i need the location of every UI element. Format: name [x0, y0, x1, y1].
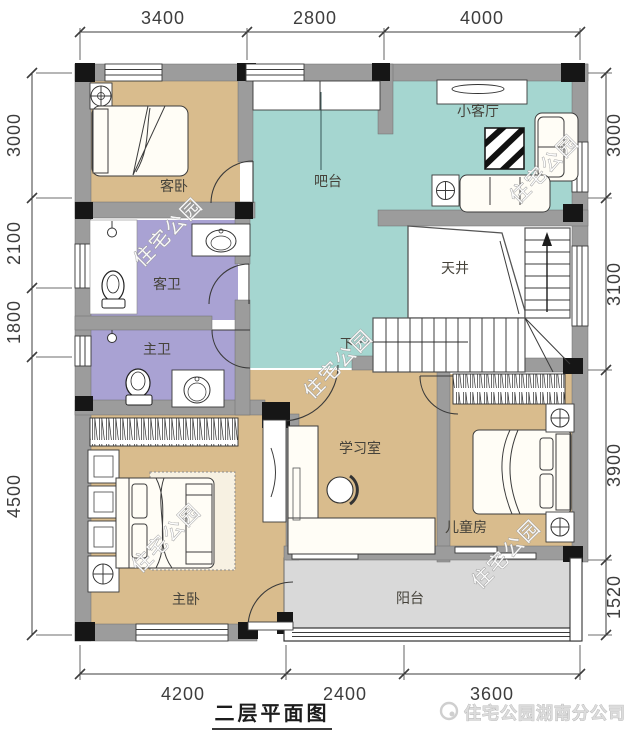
- label-bar: 吧台: [314, 173, 342, 189]
- stair-lower-flight: [373, 318, 525, 372]
- label-guest-bath: 客卫: [153, 276, 181, 292]
- nightstand-lamp-icon: [88, 556, 119, 592]
- bar-counter: [253, 81, 380, 110]
- side-table-icon: [432, 175, 459, 206]
- window-left-master-bath: [75, 336, 91, 366]
- kids-nightstand-bottom: [546, 512, 574, 542]
- room-balcony-floor: [284, 558, 576, 636]
- floor-plan-drawing: 客卧 吧台 小客厅 客卫 天井 主卫 学习室 儿童房 主卧 阳台 下 住宅公园 …: [0, 0, 638, 740]
- kids-wardrobe: [453, 374, 565, 404]
- sink-guest: [192, 224, 250, 256]
- window-top-guest-bedroom: [105, 64, 162, 81]
- label-small-living: 小客厅: [457, 103, 499, 119]
- floor-plan-page: 客卧 吧台 小客厅 客卫 天井 主卫 学习室 儿童房 主卧 阳台 下 住宅公园 …: [0, 0, 638, 740]
- master-bed-headboard: [116, 478, 129, 568]
- dim-bottom-1: 4200: [161, 684, 205, 704]
- kids-nightstand-top: [546, 404, 574, 432]
- ceiling-fan-icon: [90, 83, 112, 109]
- guest-bed-headboard: [93, 109, 108, 173]
- dim-right-1: 3000: [604, 113, 624, 157]
- label-balcony: 阳台: [396, 590, 424, 606]
- window-right-lightwell: [572, 246, 588, 326]
- drawer-2: [88, 521, 119, 553]
- toilet-master: [126, 369, 152, 405]
- label-master-bedroom: 主卧: [172, 591, 200, 607]
- dim-left-4: 4500: [4, 474, 24, 518]
- label-light-well: 天井: [441, 260, 469, 276]
- dim-top-1: 3400: [141, 8, 185, 28]
- label-master-bath: 主卫: [143, 341, 171, 357]
- desk-horizontal: [288, 518, 435, 554]
- drawer-1: [88, 486, 119, 518]
- toilet-guest: [102, 271, 125, 308]
- master-tv-cabinet: [263, 420, 286, 522]
- dim-top-2: 2800: [293, 8, 337, 28]
- dim-bottom-2: 2400: [323, 684, 367, 704]
- window-bottom-master-bedroom: [136, 624, 228, 641]
- dim-left-2: 2100: [4, 221, 24, 265]
- label-guest-bedroom: 客卧: [160, 178, 188, 194]
- plan-title: 二层平面图: [215, 702, 330, 725]
- dim-left-1: 3000: [4, 113, 24, 157]
- label-kids-room: 儿童房: [445, 519, 487, 535]
- dim-right-2: 3100: [604, 262, 624, 306]
- dim-right-4: 1520: [604, 575, 624, 619]
- desk-chair: [327, 476, 357, 504]
- label-study: 学习室: [339, 440, 381, 456]
- dim-right-3: 3900: [604, 443, 624, 487]
- dim-top-3: 4000: [460, 8, 504, 28]
- kids-bed-headboard: [556, 434, 570, 510]
- door-leaf-master-bedroom: [248, 622, 293, 630]
- master-wardrobe: [90, 418, 238, 446]
- window-top-bar: [246, 64, 304, 81]
- brand-name: 住宅公园湖南分公司: [464, 703, 626, 723]
- sink-master: [172, 370, 224, 407]
- window-left-guest-bath: [75, 244, 91, 288]
- dim-left-3: 1800: [4, 300, 24, 344]
- dim-bottom-3: 3600: [470, 684, 514, 704]
- dresser-top: [88, 450, 119, 483]
